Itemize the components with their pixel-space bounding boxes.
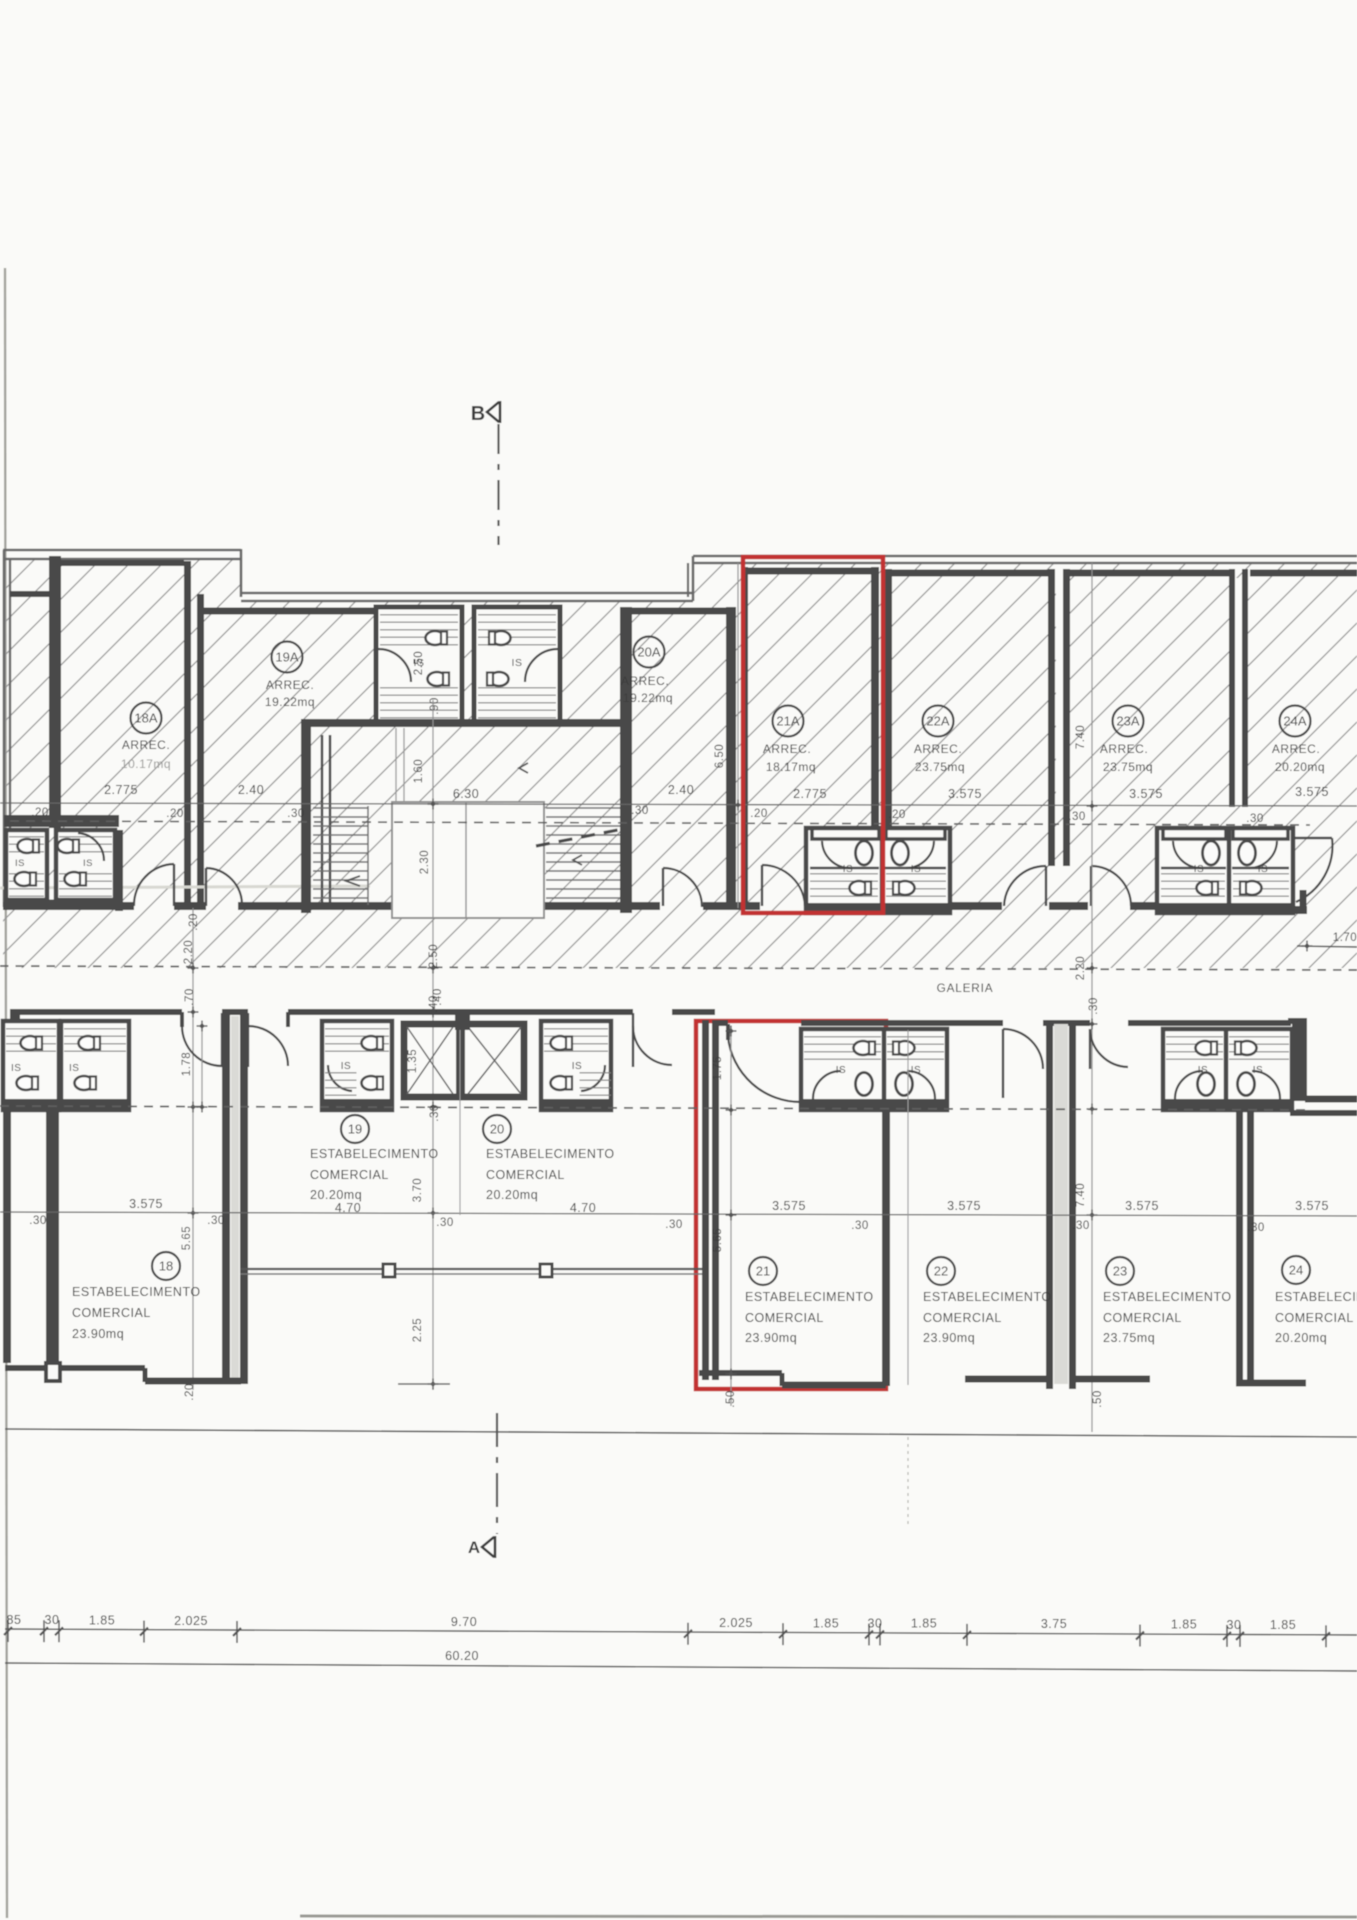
svg-text:.30: .30 [207, 1215, 225, 1227]
svg-text:.40: .40 [428, 995, 440, 1013]
svg-text:20.20mq: 20.20mq [1275, 760, 1325, 774]
svg-text:22A: 22A [926, 714, 949, 729]
svg-text:2.50: 2.50 [428, 944, 440, 968]
svg-text:6.30: 6.30 [453, 787, 479, 801]
svg-text:23.90mq: 23.90mq [923, 1331, 975, 1345]
svg-text:1.70: 1.70 [1333, 932, 1357, 944]
svg-text:IS: IS [341, 1061, 351, 1072]
svg-text:ESTABELECIMENTO: ESTABELECIMENTO [72, 1285, 201, 1299]
svg-text:2.20: 2.20 [183, 940, 195, 964]
svg-text:.30: .30 [1246, 813, 1264, 825]
svg-text:30: 30 [45, 1613, 60, 1627]
svg-text:.30: .30 [665, 1219, 683, 1231]
svg-text:.20: .20 [188, 913, 200, 931]
svg-text:9.70: 9.70 [451, 1615, 477, 1629]
svg-text:2.025: 2.025 [174, 1614, 208, 1628]
svg-text:6.50: 6.50 [714, 744, 726, 768]
svg-text:1.85: 1.85 [1171, 1618, 1197, 1632]
svg-text:.30: .30 [1072, 1220, 1090, 1232]
svg-text:23: 23 [1113, 1264, 1127, 1279]
svg-text:19.22mq: 19.22mq [265, 695, 315, 709]
svg-text:.30: .30 [1088, 997, 1100, 1015]
svg-text:20.20mq: 20.20mq [486, 1188, 538, 1202]
svg-text:4.70: 4.70 [570, 1201, 596, 1215]
svg-text:20: 20 [490, 1122, 504, 1137]
svg-text:ARREC.: ARREC. [1272, 742, 1320, 756]
svg-text:23.90mq: 23.90mq [72, 1327, 124, 1341]
svg-text:ESTABELECIMENTO: ESTABELECIMENTO [1103, 1290, 1232, 1304]
svg-text:20A: 20A [637, 645, 660, 660]
svg-text:2.30: 2.30 [419, 850, 431, 874]
svg-text:30: 30 [1227, 1618, 1242, 1632]
svg-text:2.50: 2.50 [413, 651, 425, 675]
svg-text:18: 18 [159, 1259, 173, 1274]
svg-text:23.75mq: 23.75mq [915, 760, 965, 774]
svg-text:2.40: 2.40 [238, 783, 264, 797]
svg-text:3.575: 3.575 [129, 1197, 163, 1211]
svg-text:ESTABELECIMENTO: ESTABELECIMENTO [923, 1290, 1052, 1304]
svg-text:30: 30 [868, 1617, 883, 1631]
svg-text:.20: .20 [166, 808, 184, 820]
svg-text:85: 85 [7, 1613, 22, 1627]
svg-text:.30: .30 [29, 1215, 47, 1227]
svg-text:COMERCIAL: COMERCIAL [310, 1168, 389, 1182]
svg-text:2.775: 2.775 [104, 783, 138, 797]
svg-text:ARREC.: ARREC. [266, 678, 314, 692]
svg-text:1.78: 1.78 [181, 1052, 193, 1076]
svg-text:3.575: 3.575 [947, 1199, 981, 1213]
svg-text:COMERCIAL: COMERCIAL [1103, 1311, 1182, 1325]
svg-text:IS: IS [572, 1061, 582, 1072]
svg-text:.30: .30 [287, 808, 305, 820]
svg-text:.50: .50 [1092, 1390, 1104, 1408]
svg-text:.20: .20 [31, 807, 49, 819]
svg-text:IS: IS [911, 864, 921, 875]
svg-text:.50: .50 [725, 1390, 737, 1408]
svg-text:ARREC.: ARREC. [1100, 742, 1148, 756]
svg-text:IS: IS [15, 858, 25, 869]
svg-text:23.75mq: 23.75mq [1103, 760, 1153, 774]
svg-text:3.575: 3.575 [1295, 1199, 1329, 1213]
svg-text:IS: IS [69, 1063, 79, 1074]
svg-text:ESTABELECIMENTO: ESTABELECIMENTO [745, 1290, 874, 1304]
svg-text:ARREC.: ARREC. [621, 674, 669, 688]
svg-text:3.575: 3.575 [772, 1199, 806, 1213]
svg-text:ESTABELECIMENTO: ESTABELECIMENTO [486, 1147, 615, 1161]
svg-text:19: 19 [348, 1122, 362, 1137]
svg-text:IS: IS [83, 858, 93, 869]
svg-text:IS: IS [1194, 864, 1204, 875]
svg-text:.20: .20 [888, 809, 906, 821]
svg-text:COMERCIAL: COMERCIAL [745, 1311, 824, 1325]
svg-text:ESTABELECIMENTO: ESTABELECIMENTO [1275, 1290, 1357, 1304]
svg-text:24: 24 [1289, 1263, 1303, 1278]
svg-text:21: 21 [756, 1264, 770, 1279]
svg-text:10.17mq: 10.17mq [121, 757, 171, 771]
svg-text:ARREC.: ARREC. [914, 742, 962, 756]
svg-text:5.65: 5.65 [712, 1228, 724, 1252]
svg-text:.30: .30 [1247, 1222, 1265, 1234]
svg-text:1.60: 1.60 [413, 759, 425, 783]
svg-text:IS: IS [512, 657, 523, 669]
svg-text:.30: .30 [631, 805, 649, 817]
svg-text:.70: .70 [184, 988, 196, 1006]
svg-text:.90: .90 [429, 697, 441, 715]
svg-text:COMERCIAL: COMERCIAL [1275, 1311, 1354, 1325]
svg-text:COMERCIAL: COMERCIAL [923, 1311, 1002, 1325]
svg-text:1.85: 1.85 [89, 1613, 115, 1627]
svg-text:3.575: 3.575 [948, 787, 982, 801]
svg-text:21A: 21A [776, 714, 799, 729]
svg-text:A: A [468, 1538, 480, 1557]
svg-text:24A: 24A [1283, 714, 1306, 729]
svg-text:.30: .30 [851, 1220, 869, 1232]
svg-text:2.775: 2.775 [793, 787, 827, 801]
svg-text:20.20mq: 20.20mq [310, 1188, 362, 1202]
svg-text:.30: .30 [1068, 811, 1086, 823]
svg-text:IS: IS [843, 864, 853, 875]
svg-text:1.75: 1.75 [712, 1056, 724, 1080]
svg-text:IS: IS [11, 1063, 21, 1074]
svg-text:3.575: 3.575 [1295, 785, 1329, 799]
svg-text:2.20: 2.20 [1075, 956, 1087, 980]
svg-text:2.40: 2.40 [668, 783, 694, 797]
svg-text:3.70: 3.70 [412, 1178, 424, 1202]
svg-text:7.40: 7.40 [1075, 725, 1087, 749]
svg-text:3.75: 3.75 [1041, 1617, 1067, 1631]
svg-text:IS: IS [1258, 864, 1268, 875]
svg-text:4.70: 4.70 [335, 1201, 361, 1215]
svg-text:18.17mq: 18.17mq [766, 760, 816, 774]
svg-text:1.85: 1.85 [911, 1617, 937, 1631]
svg-text:7.40: 7.40 [1075, 1183, 1087, 1207]
svg-text:2.025: 2.025 [719, 1616, 753, 1630]
svg-text:B: B [471, 403, 485, 425]
svg-text:20.20mq: 20.20mq [1275, 1331, 1327, 1345]
svg-text:19.22mq: 19.22mq [623, 691, 673, 705]
svg-text:1.85: 1.85 [813, 1616, 839, 1630]
svg-text:23A: 23A [1116, 714, 1139, 729]
svg-text:ARREC.: ARREC. [122, 738, 170, 752]
svg-text:COMERCIAL: COMERCIAL [486, 1168, 565, 1182]
svg-text:23.75mq: 23.75mq [1103, 1331, 1155, 1345]
svg-text:18A: 18A [134, 711, 157, 726]
svg-text:60.20: 60.20 [445, 1649, 479, 1663]
svg-text:GALERIA: GALERIA [937, 981, 994, 995]
svg-text:5.65: 5.65 [181, 1226, 193, 1250]
svg-text:19A: 19A [275, 650, 298, 665]
svg-text:ARREC.: ARREC. [763, 742, 811, 756]
svg-text:1.85: 1.85 [1270, 1618, 1296, 1632]
svg-text:.20: .20 [184, 1383, 196, 1401]
svg-text:.30: .30 [436, 1217, 454, 1229]
svg-text:22: 22 [934, 1264, 948, 1279]
svg-text:23.90mq: 23.90mq [745, 1331, 797, 1345]
svg-text:2.25: 2.25 [412, 1318, 424, 1342]
svg-text:3.575: 3.575 [1125, 1199, 1159, 1213]
svg-text:ESTABELECIMENTO: ESTABELECIMENTO [310, 1147, 439, 1161]
svg-text:1.35: 1.35 [407, 1049, 419, 1073]
svg-text:COMERCIAL: COMERCIAL [72, 1306, 151, 1320]
svg-text:.20: .20 [750, 808, 768, 820]
svg-text:3.575: 3.575 [1129, 787, 1163, 801]
